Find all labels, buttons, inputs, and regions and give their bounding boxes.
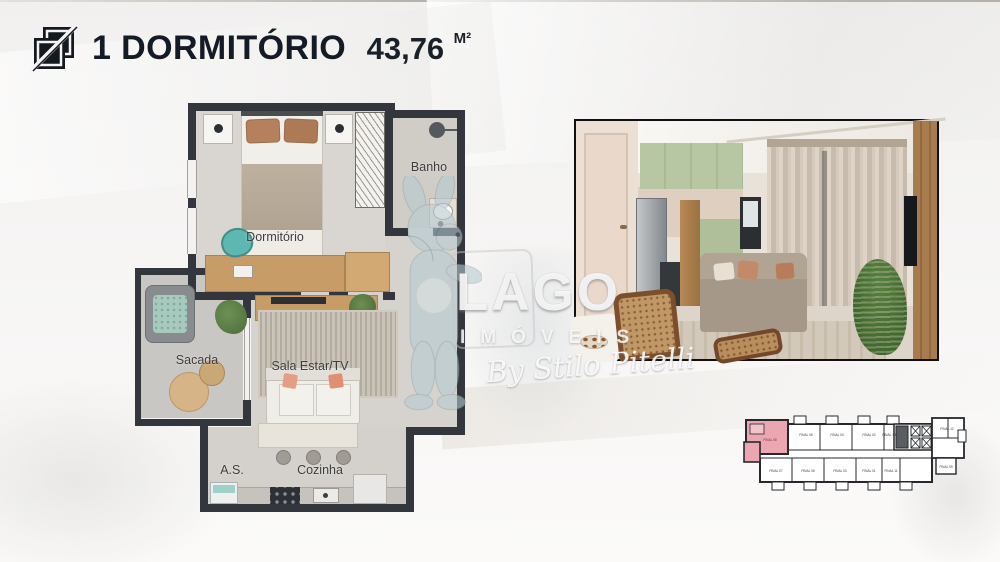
keyplan-unit-label: FINAL 09	[939, 465, 953, 469]
room-label-sala: Sala Estar/TV	[271, 359, 348, 373]
keyplan-unit-label: FINAL 03	[833, 469, 847, 473]
sink-drain-icon	[323, 493, 328, 498]
photo-window-pane	[743, 201, 758, 227]
keyplan-unit-label: FINAL 01	[862, 469, 876, 473]
unit-area-value: 43,76	[367, 31, 445, 66]
room-label-sacada: Sacada	[176, 353, 218, 367]
keyplan-unit-label: FINAL 12	[940, 427, 954, 431]
photo-sofa-pillow	[713, 262, 735, 281]
cooktop	[270, 487, 300, 504]
bar-stool	[276, 450, 291, 465]
photo-plate-cookies	[580, 335, 608, 349]
header: 1 DORMITÓRIO 43,76 M²	[30, 24, 471, 72]
room-label-dormitorio: Dormitório	[246, 230, 304, 244]
keyplan-unit-label: FINAL 05	[801, 469, 815, 473]
laptop	[233, 265, 253, 278]
keyplan-unit-label: FINAL 04	[830, 433, 844, 437]
bed-headboard	[241, 111, 323, 116]
building-keyplan: FINAL 08 FINAL 06 FINAL 04 FINAL 02 FINA…	[742, 410, 967, 494]
keyplan-unit-label: FINAL 08	[763, 438, 777, 442]
photo-sofa-pillow	[775, 262, 794, 279]
sofa-pillow	[282, 373, 298, 389]
room-label-banho: Banho	[411, 160, 447, 174]
brand-logo-icon	[30, 24, 78, 72]
shower-arm	[443, 129, 457, 131]
dresser	[345, 252, 390, 292]
photo-rattan-chair	[613, 288, 682, 362]
photo-counter-wood	[680, 200, 700, 308]
marketing-sheet: 1 DORMITÓRIO 43,76 M²	[0, 0, 1000, 562]
desk	[205, 255, 345, 292]
unit-type-title: 1 DORMITÓRIO	[92, 29, 346, 67]
keyplan-unit-label: FINAL 07	[769, 469, 783, 473]
interior-render-photo	[574, 119, 939, 361]
peninsula-counter	[258, 423, 358, 448]
fridge	[353, 474, 387, 504]
photo-upper-cabinets-green	[640, 143, 743, 189]
sofa-cushion	[279, 384, 314, 416]
armchair-cushion	[153, 295, 187, 333]
lamp-icon	[335, 124, 344, 133]
photo-tv	[904, 196, 917, 266]
floor-plan: Dormitório Banho Sacada Sala Estar/TV A.…	[133, 100, 473, 522]
room-label-as: A.S.	[220, 463, 244, 477]
washer-top	[213, 485, 235, 493]
lamp-icon	[214, 124, 223, 133]
bed-blanket	[242, 164, 322, 230]
keyplan-unit-label: FINAL 06	[799, 433, 813, 437]
keyplan-unit-label: FINAL 02	[862, 433, 876, 437]
unit-area-unit: M²	[454, 30, 472, 47]
keyplan-unit-label: FINAL 11	[884, 469, 897, 473]
sofa-pillow	[328, 373, 344, 389]
sofa-cushion	[316, 384, 351, 416]
photo-sofa-pillow	[737, 260, 758, 280]
photo-curtain-rod	[767, 139, 907, 147]
room-label-cozinha: Cozinha	[297, 463, 343, 477]
bed-pillow	[246, 118, 281, 143]
balcony-plant	[215, 300, 247, 334]
photo-door-handle	[620, 225, 627, 229]
keyplan-unit-label: FINAL 10	[882, 433, 896, 437]
bathroom-sink	[433, 203, 453, 220]
bed-pillow	[284, 118, 319, 143]
page-title: 1 DORMITÓRIO 43,76 M²	[92, 29, 471, 68]
tv	[271, 297, 326, 304]
